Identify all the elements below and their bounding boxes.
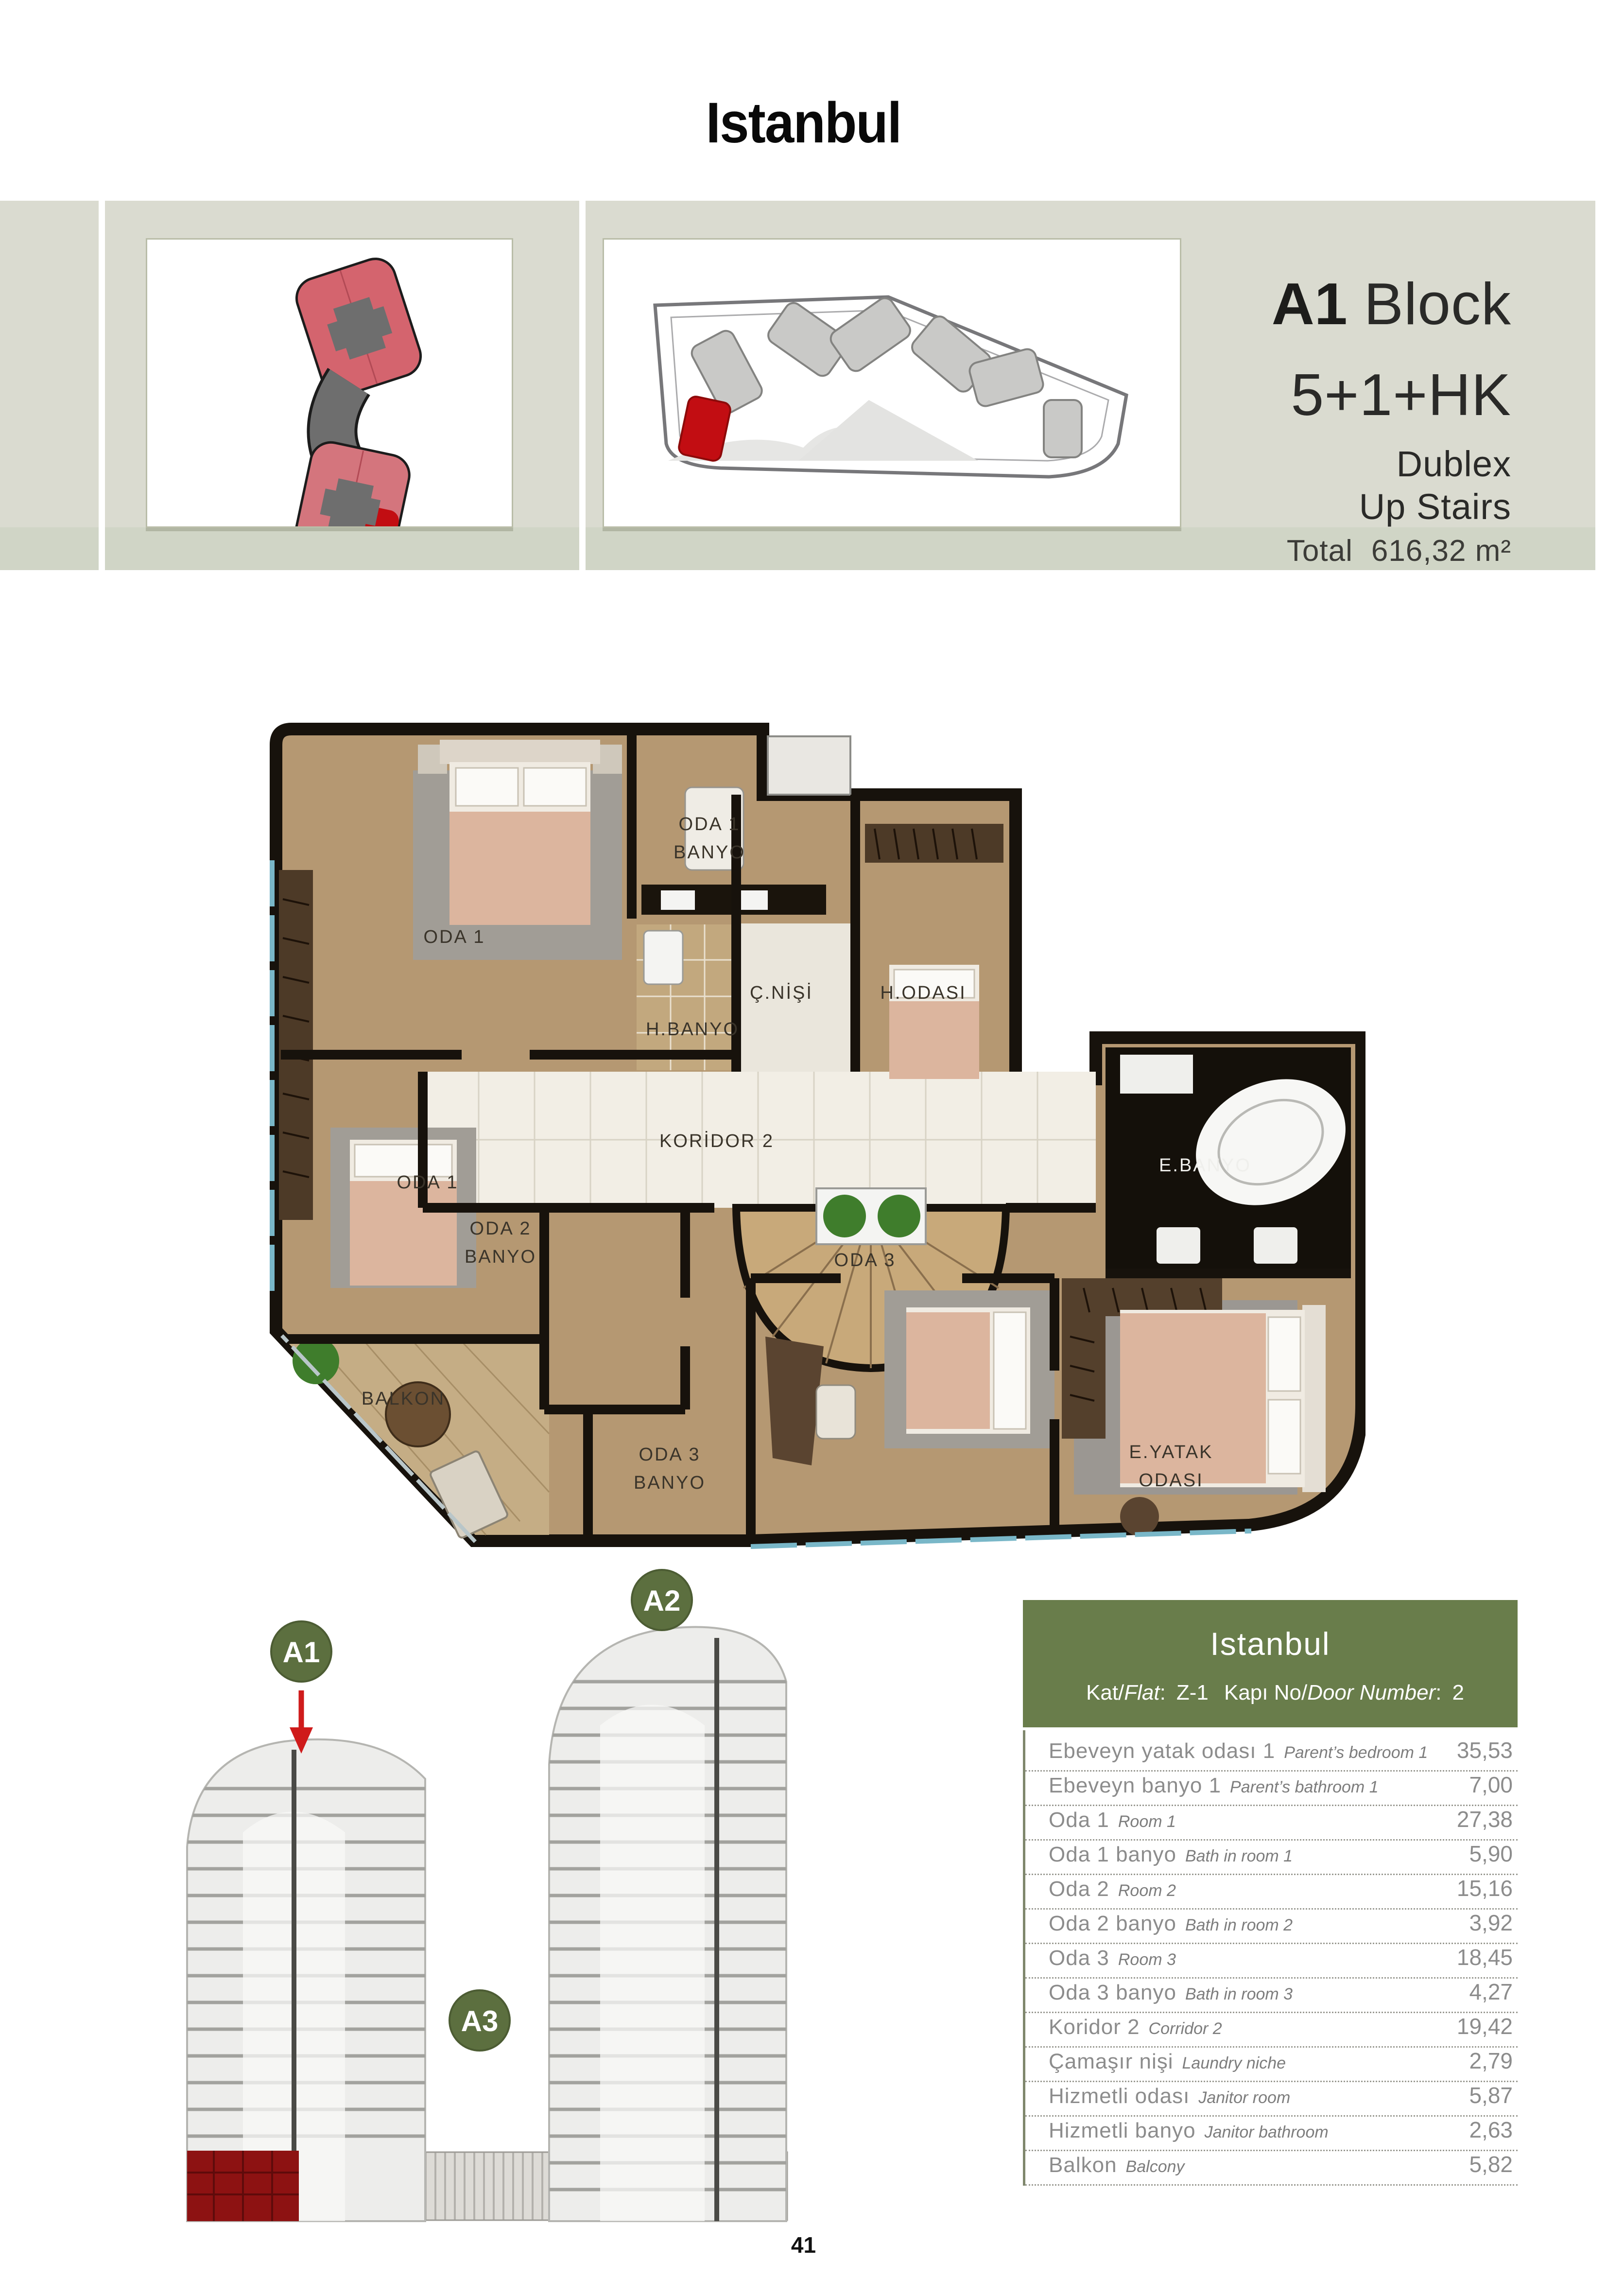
tower-a2 (547, 1627, 788, 2222)
e-banyo-bidet (1254, 1227, 1297, 1264)
total-value: 616,32 m² (1371, 534, 1511, 568)
total-band-left (0, 527, 99, 570)
footprint-top-wing (292, 254, 426, 401)
room-name-tr: Oda 2 (1049, 1877, 1109, 1901)
room-name-tr: Oda 1 (1049, 1808, 1109, 1832)
h-banyo-room (637, 924, 736, 1070)
table-row: Hizmetli banyoJanitor bathroom2,63 (1025, 2117, 1518, 2151)
label-oda1-banyo-line2: BANYO (674, 842, 745, 863)
balcony (287, 1338, 549, 1539)
label-oda3-banyo-line1: ODA 3 (639, 1444, 701, 1465)
table-row: Oda 1Room 127,38 (1025, 1806, 1518, 1841)
floor-plan: ODA 1 BANYO ODA 1 Ç.NİŞİ H.BANYO H.ODASI… (258, 714, 1365, 1558)
label-e-yatak-line2: ODASI (1139, 1470, 1203, 1491)
room-name-en: Corridor 2 (1149, 2019, 1222, 2038)
flat-field: Kat/Flat:Z-1 (1086, 1681, 1209, 1705)
unit-card-subtitle: Kat/Flat:Z-1 Kapı No/Door Number:2 (1023, 1662, 1518, 1705)
badge-a2-label: A2 (643, 1584, 681, 1617)
block-footprint-diagram (146, 238, 513, 528)
room-area: 3,92 (1469, 1910, 1513, 1936)
unit-card-header: Istanbul Kat/Flat:Z-1 Kapı No/Door Numbe… (1023, 1600, 1518, 1727)
door-colon: : (1435, 1681, 1441, 1705)
room-area: 35,53 (1457, 1737, 1513, 1763)
table-row: Koridor 2Corridor 219,42 (1025, 2013, 1518, 2048)
label-oda3-banyo-line2: BANYO (634, 1473, 706, 1493)
room-name-tr: Oda 1 banyo (1049, 1843, 1176, 1867)
room-name-en: Balcony (1126, 2157, 1185, 2176)
table-row: Ebeveyn banyo 1Parent’s bathroom 17,00 (1025, 1772, 1518, 1806)
footprint-bottom-wing (291, 438, 413, 526)
label-oda2-banyo-line2: BANYO (465, 1247, 536, 1267)
label-h-banyo: H.BANYO (646, 1019, 739, 1040)
left-wardrobe (279, 870, 313, 1220)
page-number: 41 (0, 2232, 1607, 2258)
table-row: Oda 2Room 215,16 (1025, 1875, 1518, 1910)
flat-prefix: Kat/ (1086, 1681, 1124, 1705)
room-name-tr: Koridor 2 (1049, 2015, 1140, 2039)
balcony-plant (293, 1338, 339, 1384)
room-name-tr: Hizmetli odası (1049, 2084, 1190, 2108)
planter-plant-2 (878, 1195, 920, 1237)
label-h-odasi: H.ODASI (880, 983, 966, 1003)
unit-info-card: Istanbul Kat/Flat:Z-1 Kapı No/Door Numbe… (1023, 1600, 1518, 2186)
label-e-banyo: E.BANYO (1159, 1155, 1251, 1176)
room-area: 19,42 (1457, 2013, 1513, 2039)
room-name-en: Parent’s bathroom 1 (1230, 1778, 1379, 1797)
room-name-en: Room 2 (1118, 1881, 1176, 1900)
flat-italic: Flat (1124, 1681, 1159, 1705)
shower (768, 736, 850, 795)
label-oda1-top: ODA 1 (424, 927, 485, 947)
oda3-chair (816, 1385, 855, 1439)
room-area: 27,38 (1457, 1806, 1513, 1832)
label-oda3: ODA 3 (834, 1250, 896, 1270)
block-footprint-svg (147, 240, 512, 526)
room-name-tr: Ebeveyn yatak odası 1 (1049, 1739, 1275, 1763)
table-row: Ebeveyn yatak odası 1Parent’s bedroom 13… (1025, 1737, 1518, 1772)
room-area: 5,87 (1469, 2082, 1513, 2108)
room-name-en: Room 1 (1118, 1812, 1176, 1831)
badge-a3: A3 (449, 1990, 510, 2051)
flat-value: Z-1 (1176, 1681, 1209, 1705)
page-title: Istanbul (64, 90, 1542, 156)
room-name-tr: Ebeveyn banyo 1 (1049, 1774, 1221, 1798)
unit-type: 5+1+HK (1291, 361, 1511, 429)
e-banyo-toilet (1157, 1227, 1200, 1264)
siteplan-svg (604, 240, 1180, 526)
table-row: BalkonBalcony5,82 (1025, 2151, 1518, 2186)
table-row: Oda 3 banyoBath in room 34,27 (1025, 1979, 1518, 2013)
room-name-en: Laundry niche (1182, 2054, 1286, 2073)
block-word: Block (1364, 271, 1511, 337)
table-row: Hizmetli odasıJanitor room5,87 (1025, 2082, 1518, 2117)
tower-a1 (185, 1739, 428, 2221)
room-area-table: Ebeveyn yatak odası 1Parent’s bedroom 13… (1023, 1730, 1518, 2186)
room-name-en: Room 3 (1118, 1950, 1176, 1969)
planter-plant-1 (823, 1195, 866, 1237)
room-name-tr: Balkon (1049, 2153, 1117, 2177)
label-oda2-banyo-line1: ODA 2 (470, 1218, 532, 1239)
floor-plan-svg: ODA 1 BANYO ODA 1 Ç.NİŞİ H.BANYO H.ODASI… (258, 714, 1365, 1555)
room-name-en: Parent’s bedroom 1 (1284, 1743, 1428, 1762)
badge-a1-label: A1 (283, 1636, 320, 1669)
room-name-tr: Oda 3 (1049, 1946, 1109, 1970)
door-prefix: Kapı No/ (1224, 1681, 1307, 1705)
door-italic: Door Number (1307, 1681, 1435, 1705)
e-banyo-counter (1120, 1055, 1193, 1094)
label-balkon: BALKON (362, 1389, 445, 1409)
badge-a1: A1 (271, 1621, 331, 1682)
label-oda1-mid: ODA 1 (397, 1172, 459, 1193)
total-band-middle (105, 527, 579, 570)
room-name-tr: Hizmetli banyo (1049, 2119, 1196, 2143)
room-name-tr: Oda 2 banyo (1049, 1912, 1176, 1936)
room-area: 4,27 (1469, 1979, 1513, 2005)
door-field: Kapı No/Door Number:2 (1224, 1681, 1464, 1705)
unit-total: Total616,32 m² (1287, 534, 1511, 568)
label-e-yatak-line1: E.YATAK (1129, 1442, 1213, 1462)
room-area: 2,63 (1469, 2117, 1513, 2143)
e-yatak-stool (1120, 1497, 1159, 1536)
label-koridor2: KORİDOR 2 (659, 1131, 774, 1151)
h-banyo-toilet (644, 931, 683, 984)
label-oda1-banyo-line1: ODA 1 (679, 814, 741, 835)
table-row: Oda 1 banyoBath in room 15,90 (1025, 1841, 1518, 1875)
siteplan-diagram (603, 238, 1181, 528)
room-name-en: Janitor bathroom (1205, 2123, 1329, 2142)
room-area: 2,79 (1469, 2048, 1513, 2074)
room-name-tr: Oda 3 banyo (1049, 1981, 1176, 2005)
badge-a3-label: A3 (461, 2005, 499, 2037)
room-area: 5,82 (1469, 2151, 1513, 2177)
badge-a2: A2 (632, 1570, 692, 1630)
building-render: A1 A2 A3 (121, 1546, 850, 2238)
door-value: 2 (1452, 1681, 1464, 1705)
room-name-en: Bath in room 1 (1185, 1847, 1293, 1866)
room-name-en: Janitor room (1198, 2088, 1290, 2107)
block-heading: A1 Block (1272, 270, 1511, 338)
towers-svg: A1 A2 A3 (121, 1546, 850, 2236)
room-name-en: Bath in room 2 (1185, 1916, 1293, 1935)
flat-colon: : (1160, 1681, 1166, 1705)
block-code: A1 (1272, 271, 1348, 337)
room-area: 5,90 (1469, 1841, 1513, 1867)
room-area: 18,45 (1457, 1944, 1513, 1970)
unit-level: Up Stairs (1359, 486, 1511, 527)
room-name-en: Bath in room 3 (1185, 1985, 1293, 2004)
unit-style: Dublex (1397, 443, 1511, 485)
label-c-nisi: Ç.NİŞİ (750, 982, 813, 1003)
table-row: Çamaşır nişiLaundry niche2,79 (1025, 2048, 1518, 2082)
room-name-tr: Çamaşır nişi (1049, 2050, 1174, 2074)
header-band-left-strip (0, 201, 99, 527)
table-row: Oda 2 banyoBath in room 23,92 (1025, 1910, 1518, 1944)
room-area: 15,16 (1457, 1875, 1513, 1901)
total-label: Total (1287, 534, 1353, 568)
room-area: 7,00 (1469, 1772, 1513, 1798)
table-row: Oda 3Room 318,45 (1025, 1944, 1518, 1979)
unit-card-title: Istanbul (1023, 1600, 1518, 1662)
